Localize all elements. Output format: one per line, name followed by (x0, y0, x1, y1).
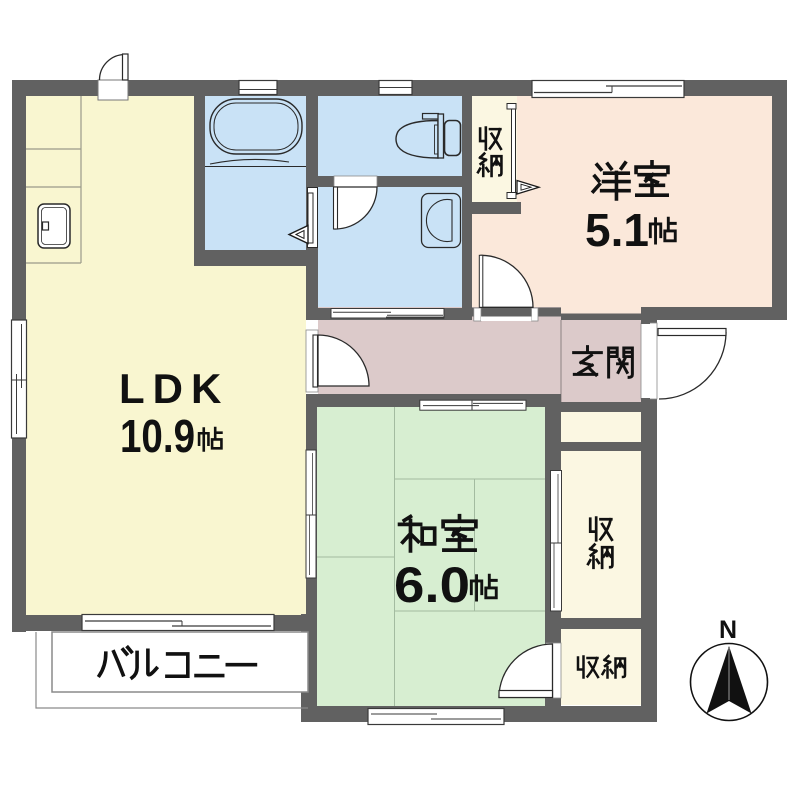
svg-text:6.0: 6.0 (394, 557, 470, 613)
svg-text:5.1: 5.1 (585, 204, 649, 256)
svg-text:LDK: LDK (119, 365, 229, 412)
svg-text:10.9: 10.9 (120, 410, 195, 462)
svg-text:N: N (719, 616, 737, 644)
